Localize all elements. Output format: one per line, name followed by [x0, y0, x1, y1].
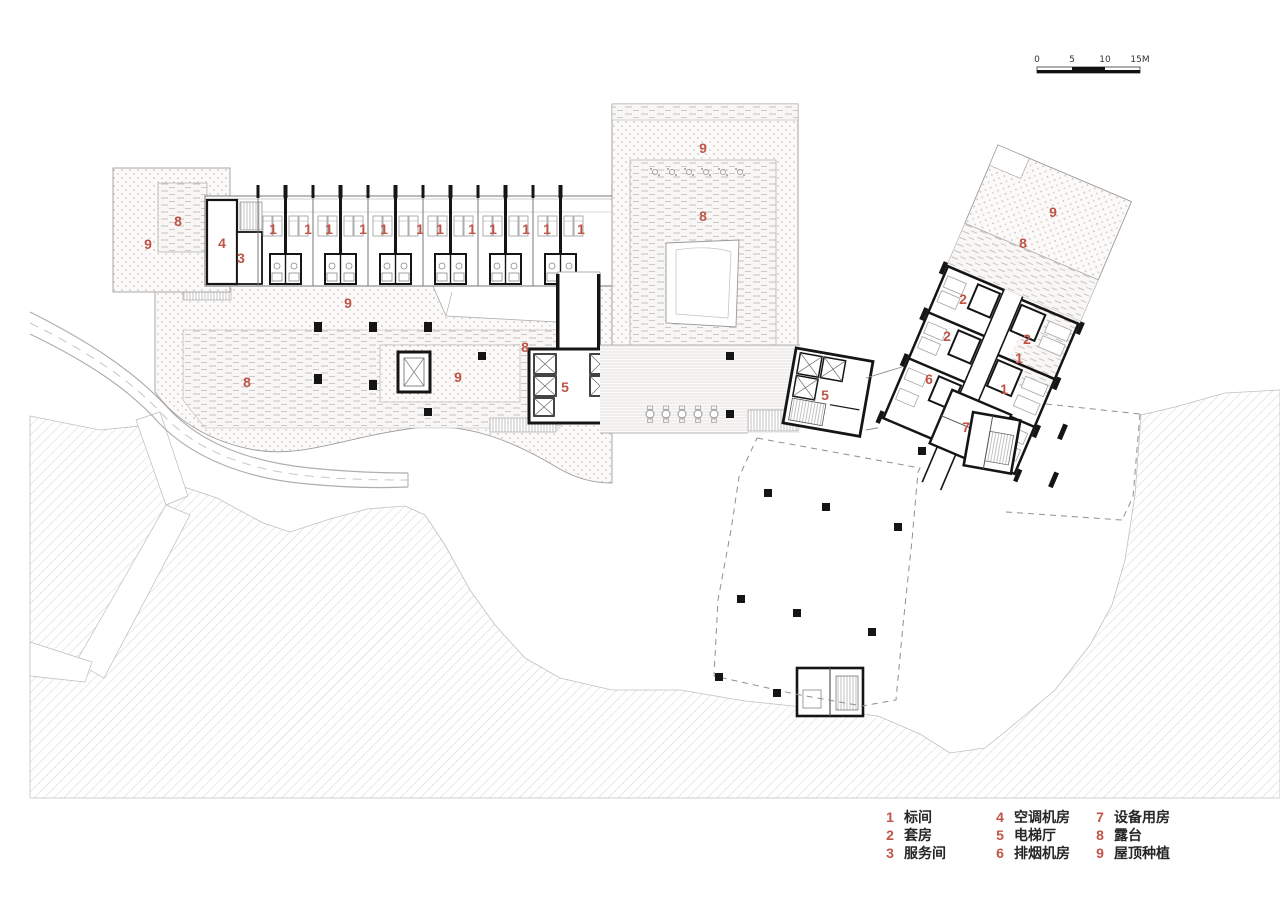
room-number-label: 5	[561, 379, 569, 395]
room-number-label: 8	[1019, 235, 1027, 251]
legend-label: 露台	[1114, 827, 1142, 843]
legend-label: 服务间	[904, 845, 946, 861]
room-number-label: 1	[380, 221, 388, 237]
room-number-label: 1	[468, 221, 476, 237]
legend-number: 7	[1096, 809, 1104, 825]
room-number-label: 2	[943, 328, 951, 344]
scale-tick-label: 15M	[1130, 55, 1149, 65]
room-number-label: 8	[243, 374, 251, 390]
room-number-label: 1	[522, 221, 530, 237]
room-number-label: 5	[821, 387, 829, 403]
room-number-label: 8	[174, 213, 182, 229]
legend-label: 标间	[903, 809, 932, 825]
legend-label: 设备用房	[1114, 809, 1170, 825]
legend: 1标间2套房3服务间4空调机房5电梯厅6排烟机房7设备用房8露台9屋顶种植	[886, 809, 1170, 861]
floor-plan-svg: 051015M 98431111111111119898598982221615…	[0, 0, 1280, 904]
room-number-label: 1	[1000, 381, 1008, 397]
legend-number: 9	[1096, 845, 1104, 861]
room-number-label: 7	[962, 419, 970, 435]
room-number-label: 8	[699, 208, 707, 224]
room-number-label: 1	[304, 221, 312, 237]
terrain-slope-hatch	[30, 390, 1280, 798]
room-number-label: 1	[577, 221, 585, 237]
room-number-label: 9	[144, 236, 152, 252]
room-number-label: 8	[521, 339, 529, 355]
legend-label: 排烟机房	[1014, 845, 1070, 861]
room-number-label: 1	[489, 221, 497, 237]
scale-tick-label: 5	[1069, 55, 1075, 65]
room-number-label: 1	[416, 221, 424, 237]
room-number-label: 1	[436, 221, 444, 237]
roof-wedge	[433, 286, 557, 322]
legend-number: 3	[886, 845, 894, 861]
legend-label: 屋顶种植	[1114, 845, 1170, 861]
legend-number: 1	[886, 809, 894, 825]
deck-terrace	[600, 345, 800, 433]
stair-core-central	[398, 352, 430, 392]
legend-label: 空调机房	[1014, 809, 1070, 825]
room-number-label: 9	[699, 140, 707, 156]
room-number-label: 9	[1049, 204, 1057, 220]
floor-plan-page: 051015M 98431111111111119898598982221615…	[0, 0, 1280, 904]
room-number-label: 4	[218, 235, 226, 251]
room-number-label: 6	[925, 371, 933, 387]
room-number-label: 1	[269, 221, 277, 237]
room-number-label: 1	[1015, 350, 1023, 366]
room-number-label: 9	[454, 369, 462, 385]
room-number-label: 1	[543, 221, 551, 237]
legend-label: 电梯厅	[1014, 827, 1056, 843]
legend-number: 5	[996, 827, 1004, 843]
legend-number: 4	[996, 809, 1004, 825]
room-number-label: 1	[359, 221, 367, 237]
legend-number: 2	[886, 827, 894, 843]
stair-core-south	[797, 668, 863, 716]
legend-label: 套房	[904, 827, 932, 843]
room-number-label: 3	[237, 250, 245, 266]
scale-tick-label: 10	[1099, 55, 1111, 65]
room-number-label: 2	[1023, 331, 1031, 347]
room-number-label: 1	[325, 221, 333, 237]
room-number-label: 9	[344, 295, 352, 311]
legend-number: 8	[1096, 827, 1104, 843]
scale-bar: 051015M	[1034, 55, 1149, 73]
legend-number: 6	[996, 845, 1004, 861]
stair-core-east	[964, 412, 1021, 474]
scale-tick-label: 0	[1034, 55, 1040, 65]
room-number-label: 2	[959, 291, 967, 307]
